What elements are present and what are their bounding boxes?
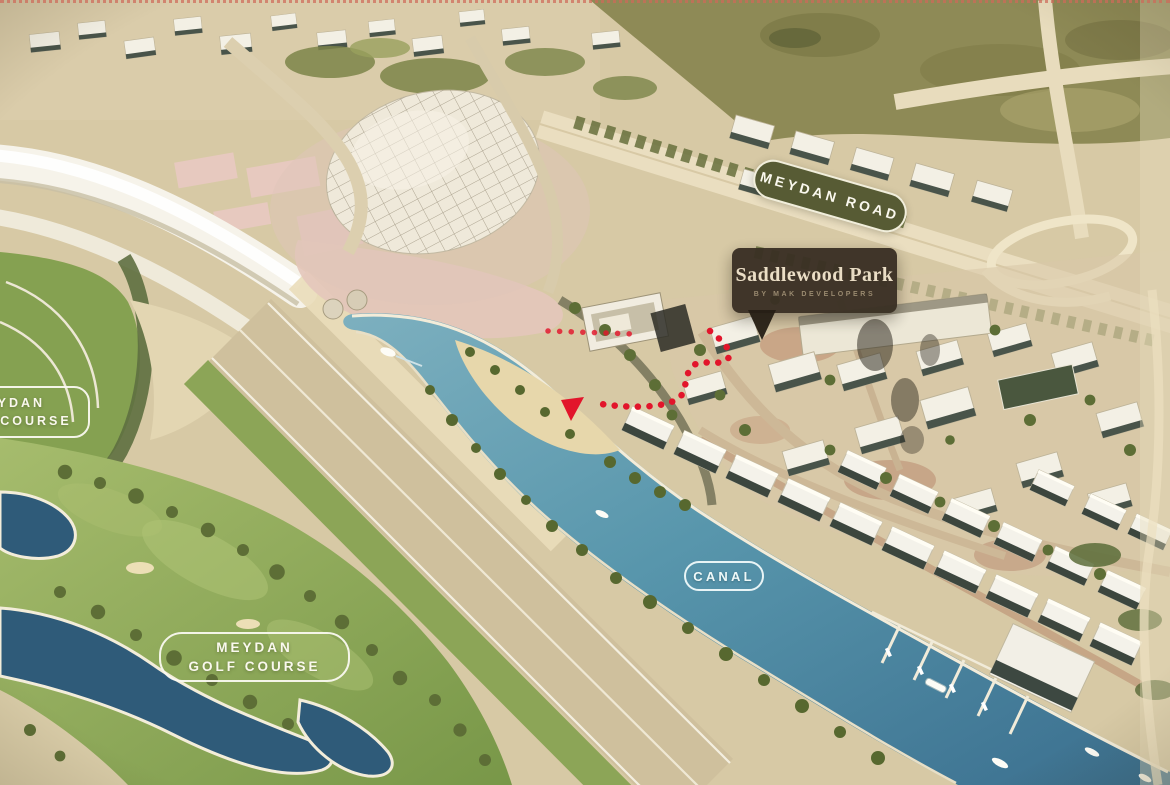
sign-pointer xyxy=(748,310,776,340)
top-boundary-dotted-line xyxy=(0,0,1170,3)
sign-subtitle: BY MAK DEVELOPERS xyxy=(754,291,875,298)
sign-title: Saddlewood Park xyxy=(735,264,893,287)
race-course-line1: MEYDAN xyxy=(0,396,88,410)
label-canal: CANAL xyxy=(684,561,764,591)
saddlewood-park-sign: Saddlewood Park BY MAK DEVELOPERS xyxy=(732,248,897,313)
label-meydan-race-course: MEYDAN RACE COURSE xyxy=(0,386,90,438)
label-meydan-golf-course: MEYDAN GOLF COURSE xyxy=(159,632,350,682)
canal-text: CANAL xyxy=(693,569,755,584)
meydan-masterplan-map: MEYDAN ROAD MEYDAN RACE COURSE CANAL MEY… xyxy=(0,0,1170,785)
race-course-line2: RACE COURSE xyxy=(0,414,88,428)
golf-course-line2: GOLF COURSE xyxy=(161,659,348,674)
golf-course-line1: MEYDAN xyxy=(161,640,348,655)
